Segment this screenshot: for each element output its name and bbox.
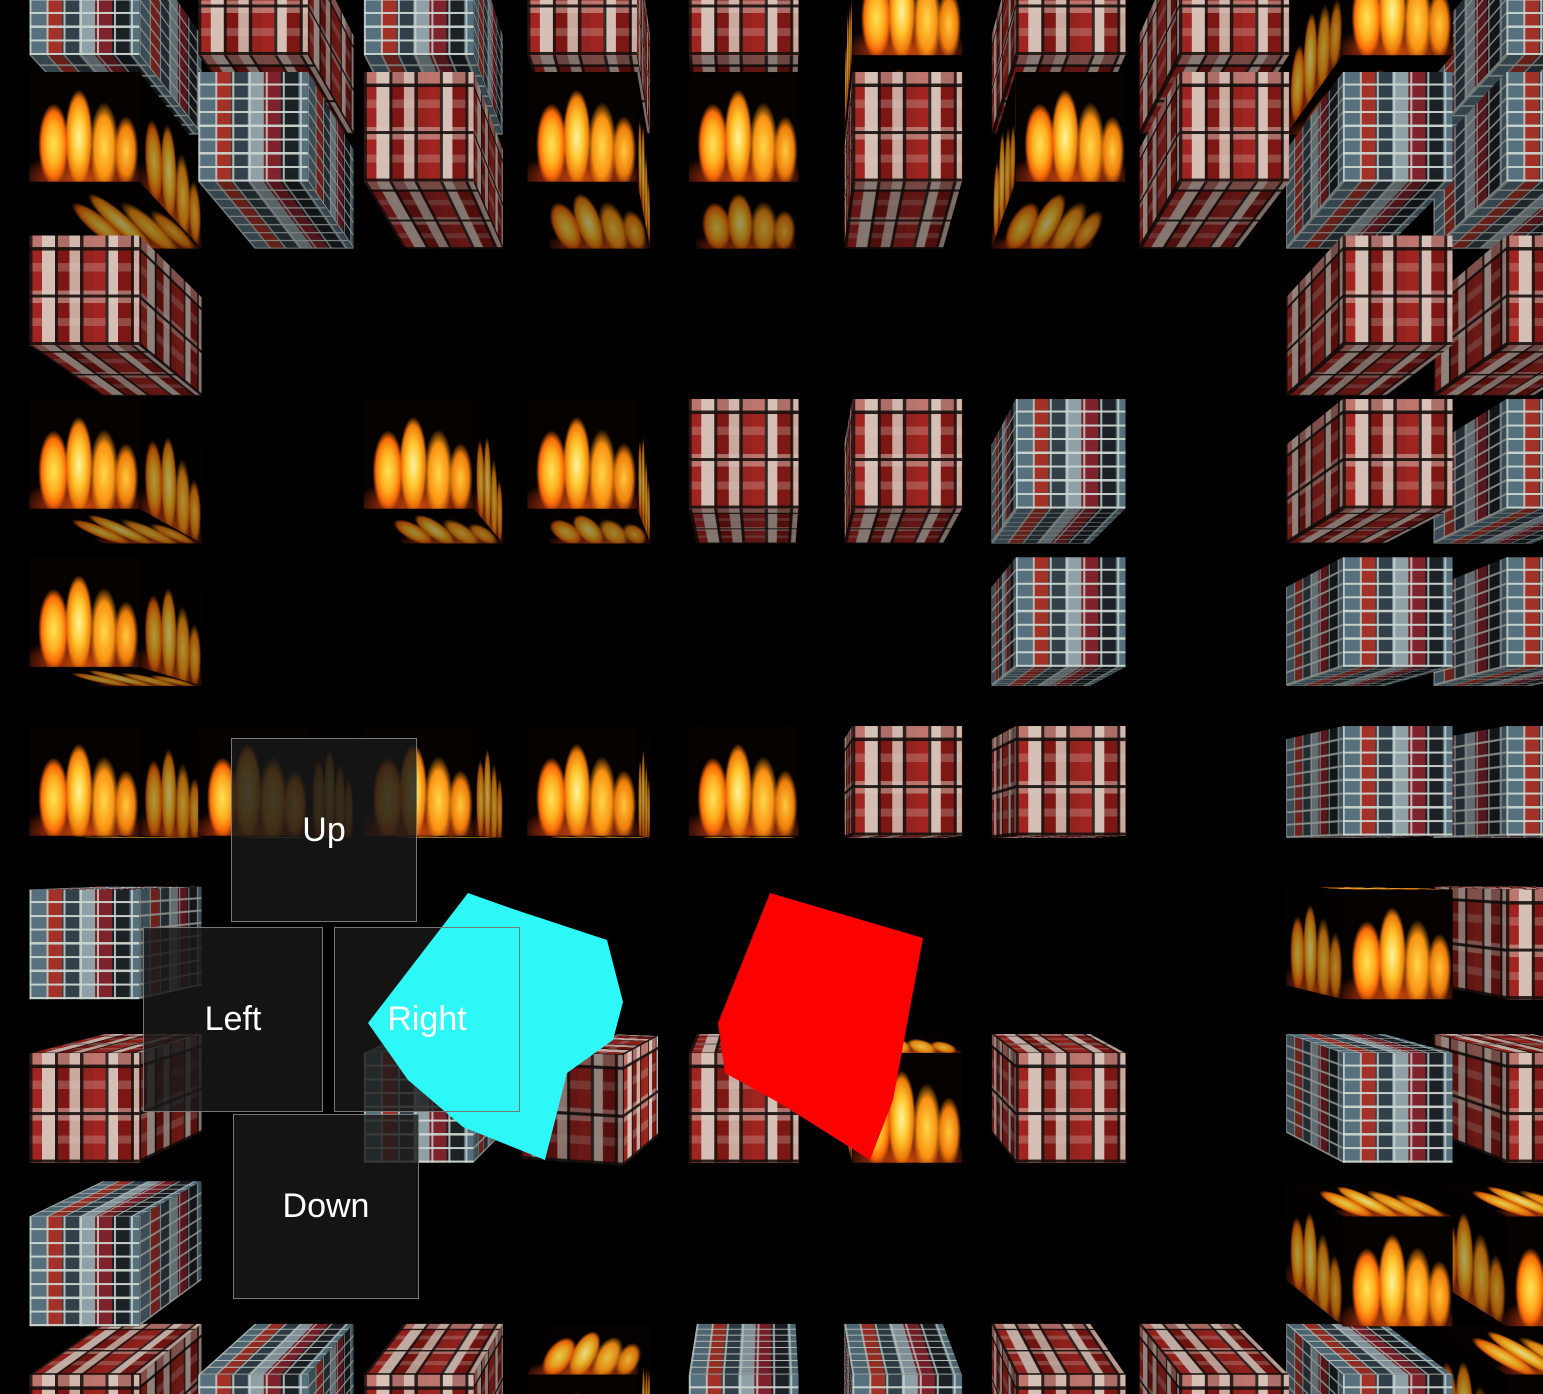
maze-cube-r7c4-redbrick xyxy=(693,1043,797,1147)
maze-cube-r4c8-greybrick xyxy=(1313,573,1417,677)
cube-face-bot xyxy=(1286,345,1452,396)
cube-face-front xyxy=(527,399,637,509)
cube-face-top xyxy=(1286,1181,1452,1216)
cube-face-rgt xyxy=(139,236,201,397)
cube-face-top xyxy=(991,1324,1125,1375)
cube-face-rgt xyxy=(139,557,201,686)
game-stage: Up Left Right Down xyxy=(0,0,1543,1394)
cube-face-front xyxy=(1016,399,1126,509)
cube-face-front xyxy=(1506,557,1543,667)
cube-face-front xyxy=(1343,890,1453,1000)
cube-face-front xyxy=(1343,1053,1453,1163)
maze-cube-r7c3-redbrick xyxy=(571,1034,611,1162)
cube-face-front xyxy=(1016,72,1126,182)
cube-face-bot xyxy=(29,345,201,396)
cube-face-front xyxy=(1343,72,1453,182)
cube-face-front xyxy=(689,1053,799,1163)
up-button-label: Up xyxy=(302,811,345,850)
cube-face-front xyxy=(689,399,799,509)
cube-face-lft xyxy=(1286,726,1343,838)
cube-face-top xyxy=(689,1324,799,1375)
maze-cube-r6c8-fire xyxy=(1313,888,1417,992)
cube-face-front xyxy=(29,1217,139,1327)
down-button[interactable]: Down xyxy=(233,1114,419,1299)
maze-viewport xyxy=(0,0,1543,1394)
cube-face-front xyxy=(1506,236,1543,346)
cube-face-lft xyxy=(1139,72,1179,249)
maze-cube-r2c9-redbrick xyxy=(1468,268,1543,372)
maze-cube-r9c3-fire xyxy=(540,1348,644,1394)
maze-cube-r9c7-redbrick xyxy=(1158,1348,1262,1394)
cube-face-bot xyxy=(29,509,201,544)
cube-face-front xyxy=(1506,1375,1543,1394)
cube-face-lft xyxy=(991,1034,1015,1163)
maze-cube-r9c2-redbrick xyxy=(385,1348,489,1394)
cube-face-front xyxy=(1506,399,1543,509)
cube-face-front xyxy=(1343,0,1453,55)
cube-face-bot xyxy=(29,667,201,686)
cube-face-bot xyxy=(844,509,962,544)
right-button-label: Right xyxy=(387,1000,466,1039)
cube-face-rgt xyxy=(139,726,201,838)
maze-cube-r2c8-redbrick xyxy=(1313,268,1417,372)
cube-face-top xyxy=(991,1034,1125,1053)
maze-cube-r5c6-redbrick xyxy=(1003,733,1107,837)
cube-face-bot xyxy=(689,836,799,838)
cube-face-front xyxy=(689,0,799,55)
cube-face-top xyxy=(1286,1034,1452,1053)
maze-cube-r3c2-fire xyxy=(385,423,489,527)
maze-cube-r4c0-fire xyxy=(68,573,172,677)
cube-face-front xyxy=(364,1375,474,1394)
maze-cube-r1c0-fire xyxy=(68,113,172,217)
maze-cube-r3c5-redbrick xyxy=(848,423,952,527)
maze-cube-r9c5-greybrick xyxy=(848,1348,952,1394)
cube-face-bot xyxy=(527,182,650,249)
cube-face-front xyxy=(364,72,474,182)
maze-cube-r9c1-greybrick xyxy=(228,1348,332,1394)
cube-face-bot xyxy=(991,509,1125,544)
maze-cube-r9c0-redbrick xyxy=(68,1348,172,1394)
maze-cube-r3c4-redbrick xyxy=(693,423,797,527)
cube-face-front xyxy=(29,399,139,509)
cube-face-front xyxy=(1343,1217,1453,1327)
cube-face-lft xyxy=(844,726,852,838)
cube-face-front xyxy=(29,890,139,1000)
maze-cube-r7c8-greybrick xyxy=(1313,1043,1417,1147)
cube-face-lft xyxy=(520,1051,623,1166)
maze-cube-r5c0-fire xyxy=(68,733,172,837)
cube-face-front xyxy=(1016,0,1126,55)
maze-cube-r1c8-greybrick xyxy=(1313,113,1417,217)
cube-face-rgt xyxy=(474,72,503,249)
left-button-label: Left xyxy=(205,1000,262,1039)
cube-face-front xyxy=(852,726,962,836)
maze-cube-r3c0-fire xyxy=(68,423,172,527)
cube-face-front xyxy=(1179,72,1289,182)
maze-cube-r7c9-redbrick xyxy=(1468,1043,1543,1147)
cube-face-bot xyxy=(844,836,962,838)
cube-face-bot xyxy=(527,836,650,838)
cube-face-front xyxy=(198,0,308,55)
cube-face-front xyxy=(1179,0,1289,55)
cube-face-front xyxy=(527,1375,637,1394)
cube-face-front xyxy=(29,557,139,667)
cube-face-bot xyxy=(1286,667,1452,686)
cube-face-front xyxy=(1506,1053,1543,1163)
cube-face-front xyxy=(29,236,139,346)
maze-3d-scene xyxy=(0,0,1543,1394)
cube-face-lft xyxy=(844,72,852,249)
maze-cube-r3c8-redbrick xyxy=(1313,423,1417,527)
cube-face-front xyxy=(1016,1375,1126,1394)
cube-face-bot xyxy=(689,182,799,249)
cube-face-lft xyxy=(1286,236,1343,397)
cube-face-top xyxy=(1286,1324,1452,1375)
cube-face-front xyxy=(1179,1375,1289,1394)
cube-face-bot xyxy=(29,836,201,838)
maze-cube-r1c5-redbrick xyxy=(848,113,952,217)
cube-face-bot xyxy=(1286,509,1452,544)
cube-face-bot xyxy=(527,509,650,544)
cube-face-front xyxy=(1343,1375,1453,1394)
cube-face-front xyxy=(852,1375,962,1394)
cube-face-front xyxy=(1016,1053,1126,1163)
maze-cube-r1c2-redbrick xyxy=(385,113,489,217)
cube-face-rgt xyxy=(637,726,650,838)
maze-cube-r5c4-fire xyxy=(693,733,797,837)
maze-cube-r1c3-fire xyxy=(540,113,644,217)
cube-face-lft xyxy=(1286,887,1343,1000)
cube-face-lft xyxy=(1286,72,1343,249)
cube-face-front xyxy=(1016,726,1126,836)
cube-face-bot xyxy=(991,836,1125,838)
cube-face-front xyxy=(623,1036,658,1166)
cube-face-front xyxy=(527,726,637,836)
maze-cube-r5c5-redbrick xyxy=(848,733,952,837)
cube-face-front xyxy=(29,1375,139,1394)
cube-face-front xyxy=(527,72,637,182)
cube-face-bot xyxy=(844,182,962,249)
cube-face-front xyxy=(1016,557,1126,667)
cube-face-front xyxy=(1506,1217,1543,1327)
cube-face-front xyxy=(1506,890,1543,1000)
maze-cube-r8c8-fire xyxy=(1313,1198,1417,1302)
maze-cube-r9c8-greybrick xyxy=(1313,1348,1417,1394)
cube-face-front xyxy=(1343,399,1453,509)
cube-face-front xyxy=(1343,236,1453,346)
cube-face-top xyxy=(527,1324,650,1375)
cube-face-front xyxy=(29,0,139,55)
maze-cube-r9c9-fire xyxy=(1468,1348,1543,1394)
cube-face-front xyxy=(1343,726,1453,836)
up-button[interactable]: Up xyxy=(231,738,417,922)
right-button[interactable]: Right xyxy=(334,927,520,1112)
cube-face-lft xyxy=(844,1034,852,1163)
cube-face-front xyxy=(1343,557,1453,667)
cube-face-front xyxy=(852,72,962,182)
cube-face-front xyxy=(689,726,799,836)
cube-face-bot xyxy=(689,509,799,544)
cube-face-front xyxy=(689,72,799,182)
cube-face-front xyxy=(852,399,962,509)
cube-face-top xyxy=(29,1181,201,1216)
cube-face-rgt xyxy=(474,726,503,838)
cube-face-top xyxy=(844,1034,962,1053)
cube-face-bot xyxy=(991,667,1125,686)
cube-face-front xyxy=(364,0,474,55)
maze-cube-r7c5-fire xyxy=(848,1043,952,1147)
cube-face-front xyxy=(29,1053,139,1163)
cube-face-lft xyxy=(1286,557,1343,686)
left-button[interactable]: Left xyxy=(143,927,323,1112)
cube-face-front xyxy=(198,1375,308,1394)
maze-cube-r8c9-fire xyxy=(1468,1198,1543,1302)
maze-cube-r2c0-redbrick xyxy=(68,268,172,372)
maze-cube-r5c3-fire xyxy=(540,733,644,837)
cube-face-top xyxy=(29,1324,201,1375)
cube-face-bot xyxy=(991,182,1125,249)
maze-cube-r4c6-greybrick xyxy=(1003,573,1107,677)
maze-cube-r7c6-redbrick xyxy=(1003,1043,1107,1147)
cube-face-lft xyxy=(991,557,1015,686)
cube-face-front xyxy=(29,726,139,836)
cube-face-front xyxy=(852,0,962,55)
cube-face-bot xyxy=(1433,836,1543,838)
cube-face-front xyxy=(1506,72,1543,182)
cube-face-lft xyxy=(1286,1034,1343,1163)
cube-face-front xyxy=(689,1375,799,1394)
maze-cube-r1c4-fire xyxy=(693,113,797,217)
maze-cube-r6c9-redbrick xyxy=(1468,888,1543,992)
maze-cube-r3c3-fire xyxy=(540,423,644,527)
cube-face-top xyxy=(689,1034,799,1053)
maze-cube-r3c6-greybrick xyxy=(1003,423,1107,527)
maze-cube-r1c9-greybrick xyxy=(1468,113,1543,217)
cube-face-rgt xyxy=(308,72,354,249)
cube-face-front xyxy=(1506,726,1543,836)
maze-cube-r5c9-greybrick xyxy=(1468,733,1543,837)
cube-face-bot xyxy=(1286,836,1452,838)
cube-face-front xyxy=(1506,0,1543,55)
cube-face-front xyxy=(364,399,474,509)
maze-cube-r8c0-greybrick xyxy=(68,1198,172,1302)
cube-face-front xyxy=(29,72,139,182)
cube-face-lft xyxy=(991,72,1015,249)
maze-cube-r3c9-greybrick xyxy=(1468,423,1543,527)
maze-cube-r1c6-fire xyxy=(1003,113,1107,217)
cube-face-lft xyxy=(991,726,1015,838)
maze-cube-r9c4-greybrick xyxy=(693,1348,797,1394)
down-button-label: Down xyxy=(283,1187,370,1226)
maze-cube-r5c8-greybrick xyxy=(1313,733,1417,837)
cube-face-front xyxy=(852,1053,962,1163)
maze-cube-r4c9-greybrick xyxy=(1468,573,1543,677)
cube-face-front xyxy=(198,72,308,182)
cube-face-front xyxy=(527,0,637,55)
maze-cube-r1c1-greybrick xyxy=(228,113,332,217)
maze-cube-r1c7-redbrick xyxy=(1158,113,1262,217)
cube-face-top xyxy=(844,1324,962,1375)
cube-face-rgt xyxy=(139,72,201,249)
maze-cube-r9c6-redbrick xyxy=(1003,1348,1107,1394)
